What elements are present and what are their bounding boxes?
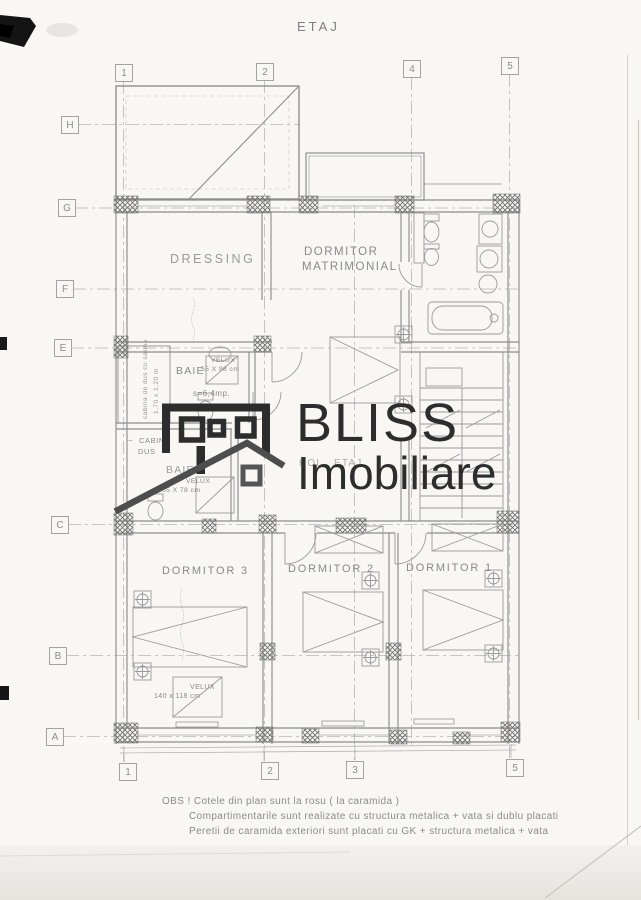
scanned-floor-plan-page: ETAJ DRESSING DORMITOR MATRIMONIAL BAIE … [0,0,641,900]
scan-artifacts [0,0,641,900]
